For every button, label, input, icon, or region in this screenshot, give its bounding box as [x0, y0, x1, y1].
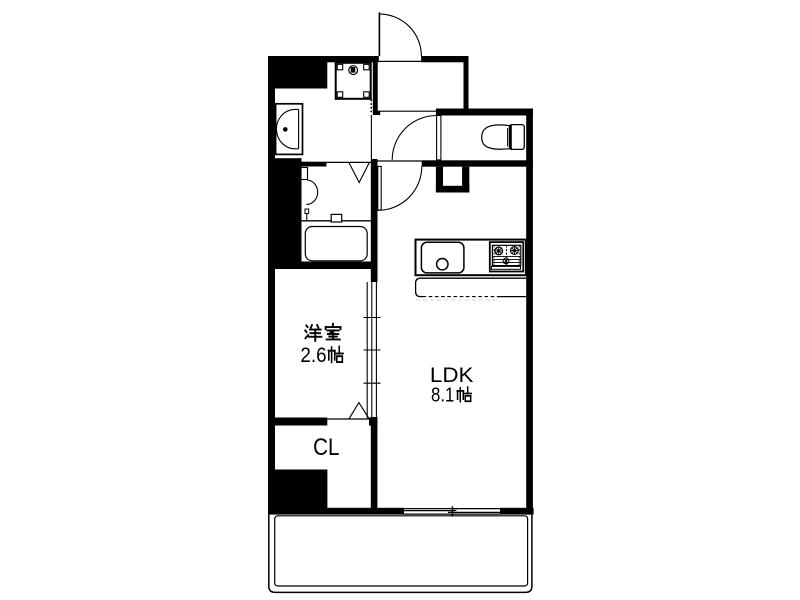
- svg-text:CL: CL: [313, 434, 339, 461]
- svg-text:8.1: 8.1: [431, 383, 454, 406]
- svg-text:2.6: 2.6: [300, 343, 326, 367]
